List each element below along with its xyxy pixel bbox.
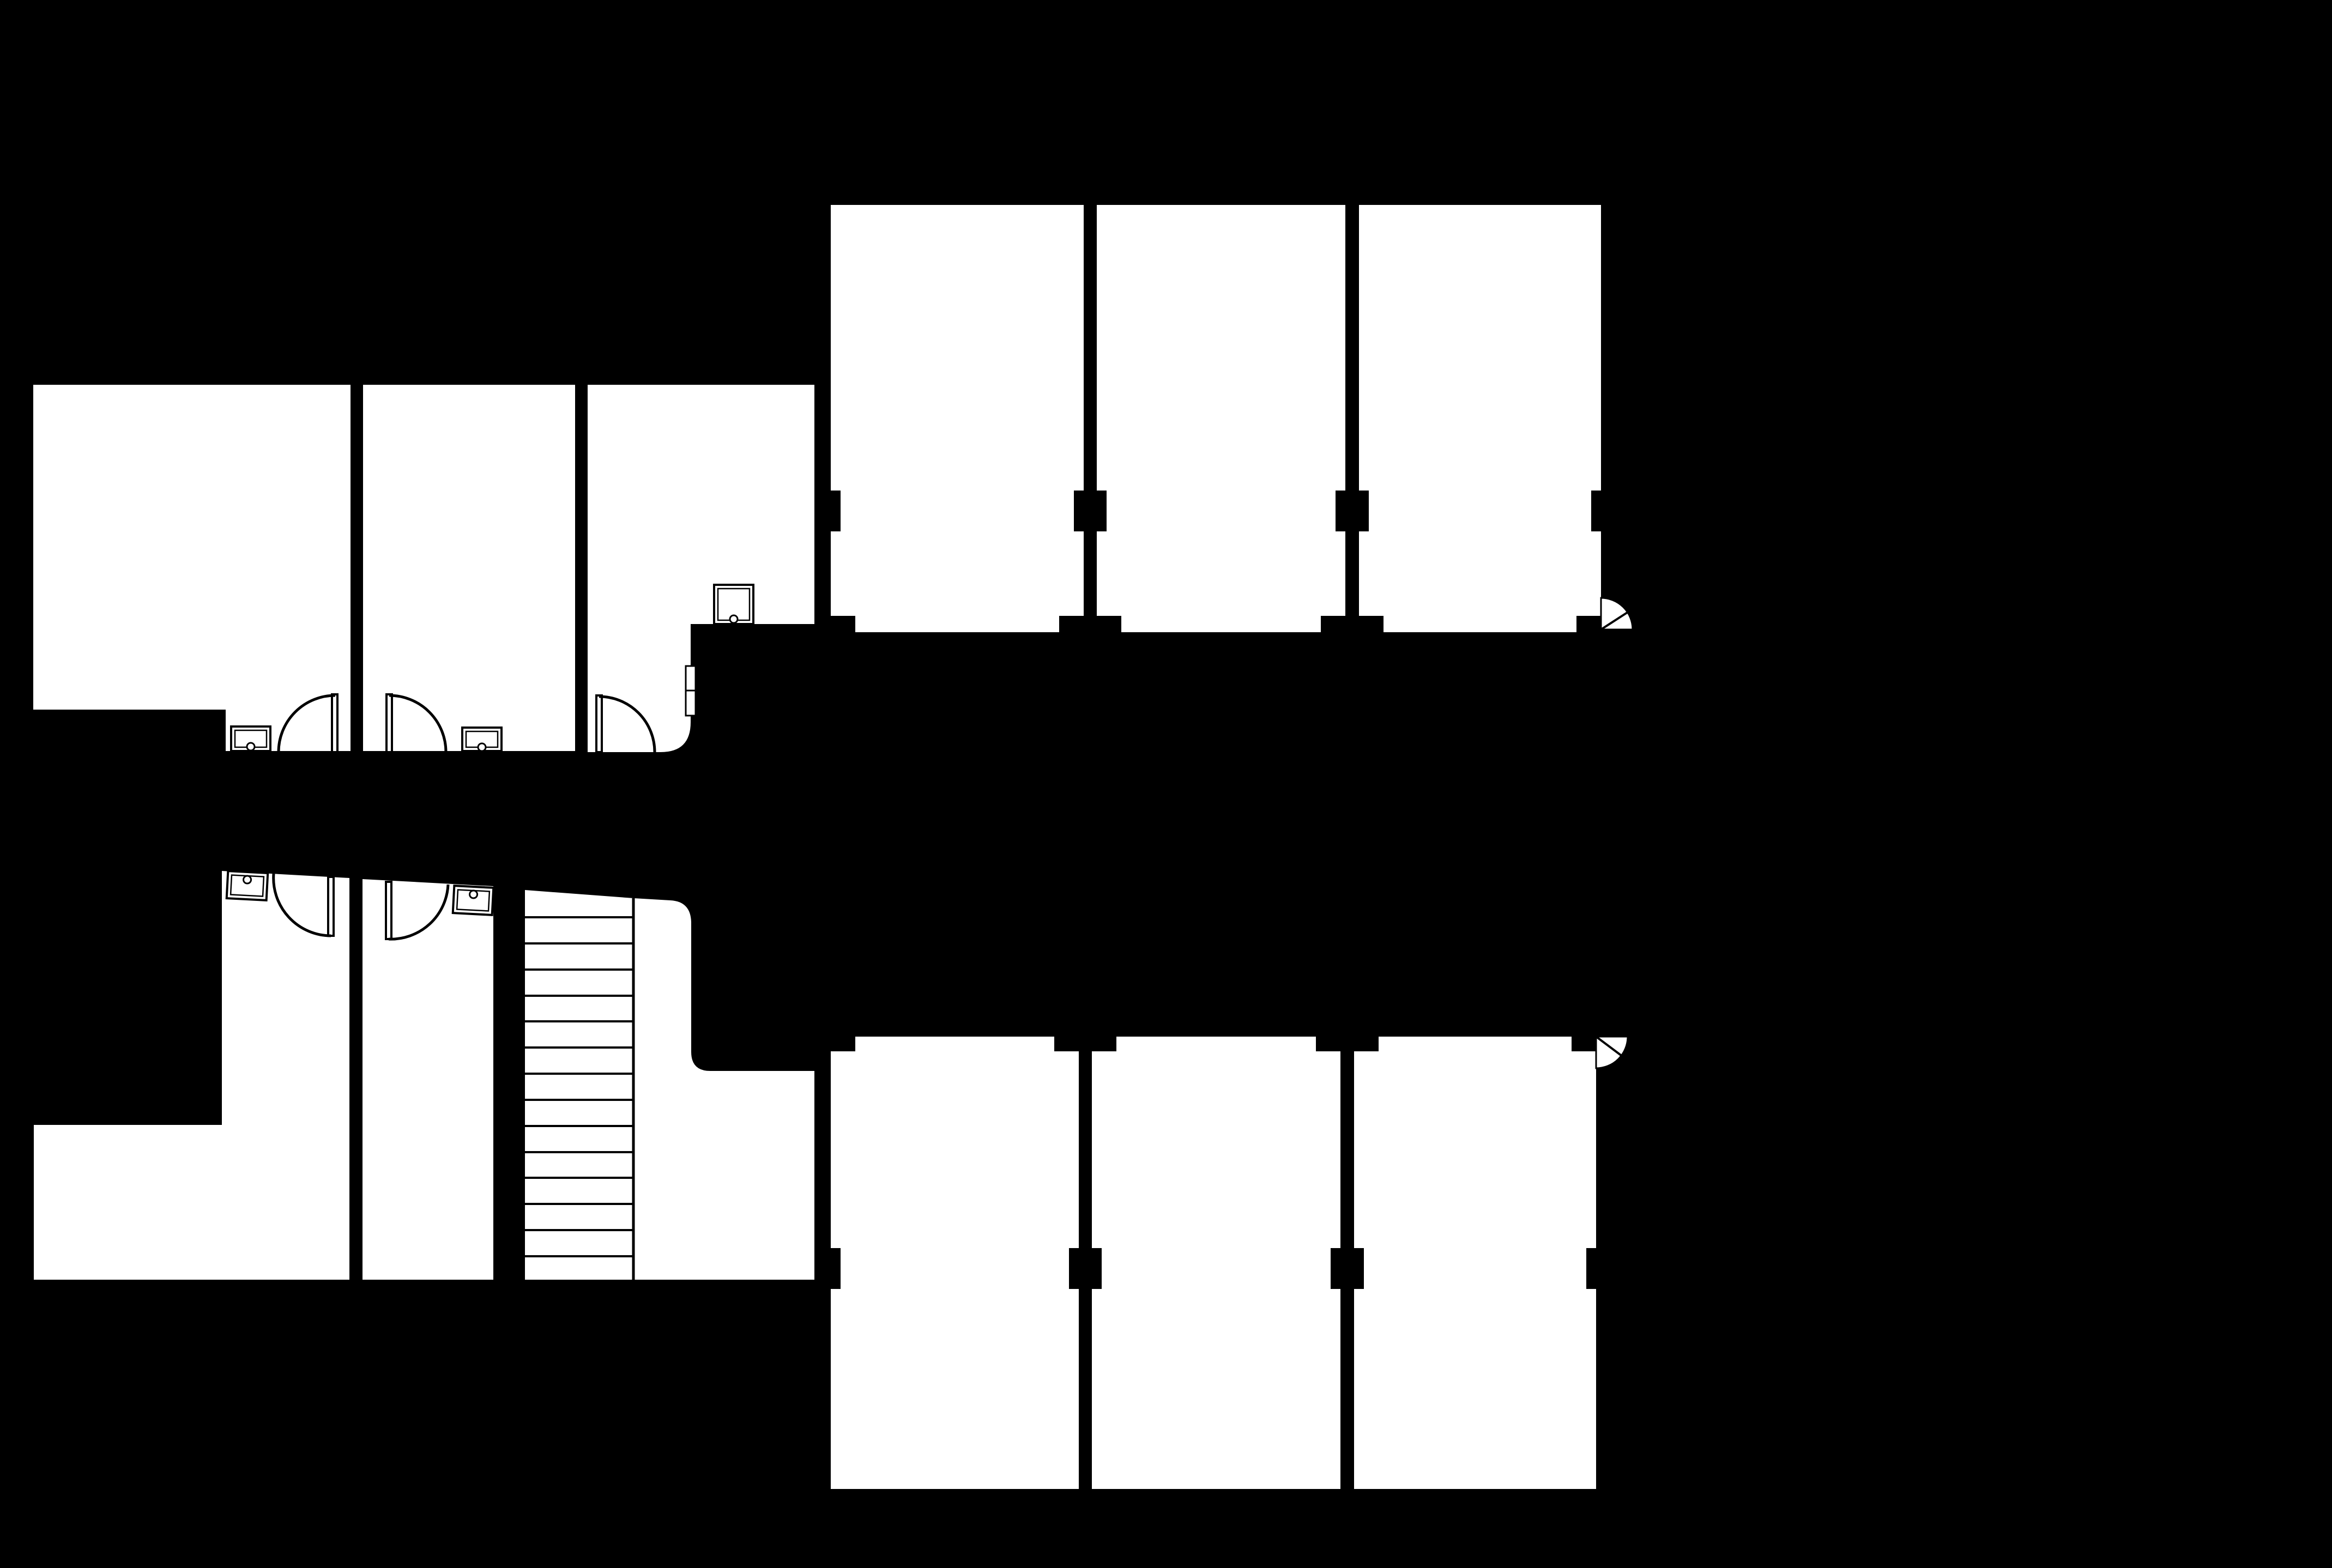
door-leaf: [332, 694, 337, 752]
unit-upper-2-door-sill: [1121, 616, 1321, 632]
wall-tab: [1354, 1248, 1364, 1289]
fixture-dot: [730, 615, 738, 623]
fixture-dot: [478, 743, 486, 751]
unit-lower-1-floor: [831, 1051, 1079, 1489]
room-lower-middle-floor: [363, 879, 493, 1280]
unit-upper-1-floor: [831, 205, 1084, 616]
wall-tab: [831, 1248, 841, 1289]
unit-upper-3-floor: [1359, 205, 1601, 616]
door-leaf: [386, 882, 391, 939]
fixture-dot: [469, 891, 478, 899]
unit-lower-1-door-sill: [855, 1037, 1054, 1051]
unit-upper-3-entry-door-swing: [1601, 598, 1633, 629]
unit-upper-2-floor: [1097, 205, 1345, 616]
stair-landing-floor: [633, 898, 814, 1280]
door-leaf: [386, 694, 392, 752]
room-upper-right-floor: [588, 385, 814, 752]
wall-tab: [831, 491, 841, 531]
fixture-dot: [243, 876, 251, 884]
wall-tab: [1097, 491, 1107, 531]
door-leaf: [328, 877, 334, 936]
unit-lower-3-door-sill: [1379, 1037, 1572, 1051]
unit-lower-2-floor: [1092, 1051, 1340, 1489]
wall-tab: [1074, 491, 1084, 531]
unit-lower-2-door-sill: [1116, 1037, 1316, 1051]
room-lower-left-floor: [34, 871, 349, 1280]
unit-upper-3-door-sill: [1384, 616, 1576, 632]
fixture-dot: [247, 743, 255, 750]
wall-tab: [1591, 491, 1601, 531]
wall-tab: [1069, 1248, 1079, 1289]
stair-floor: [525, 890, 633, 1280]
wall-tab: [1359, 491, 1369, 531]
wall-tab: [1586, 1248, 1596, 1289]
wall-tab: [1092, 1248, 1102, 1289]
room-upper-left-floor: [33, 385, 351, 751]
wall-tab: [1331, 1248, 1340, 1289]
unit-upper-1-door-sill: [855, 616, 1059, 632]
wall-tab: [1336, 491, 1345, 531]
floor-plan-canvas: [0, 0, 2332, 1568]
floor-plan-svg: [0, 0, 2332, 1568]
unit-lower-3-floor: [1354, 1051, 1596, 1489]
door-leaf: [596, 695, 602, 752]
